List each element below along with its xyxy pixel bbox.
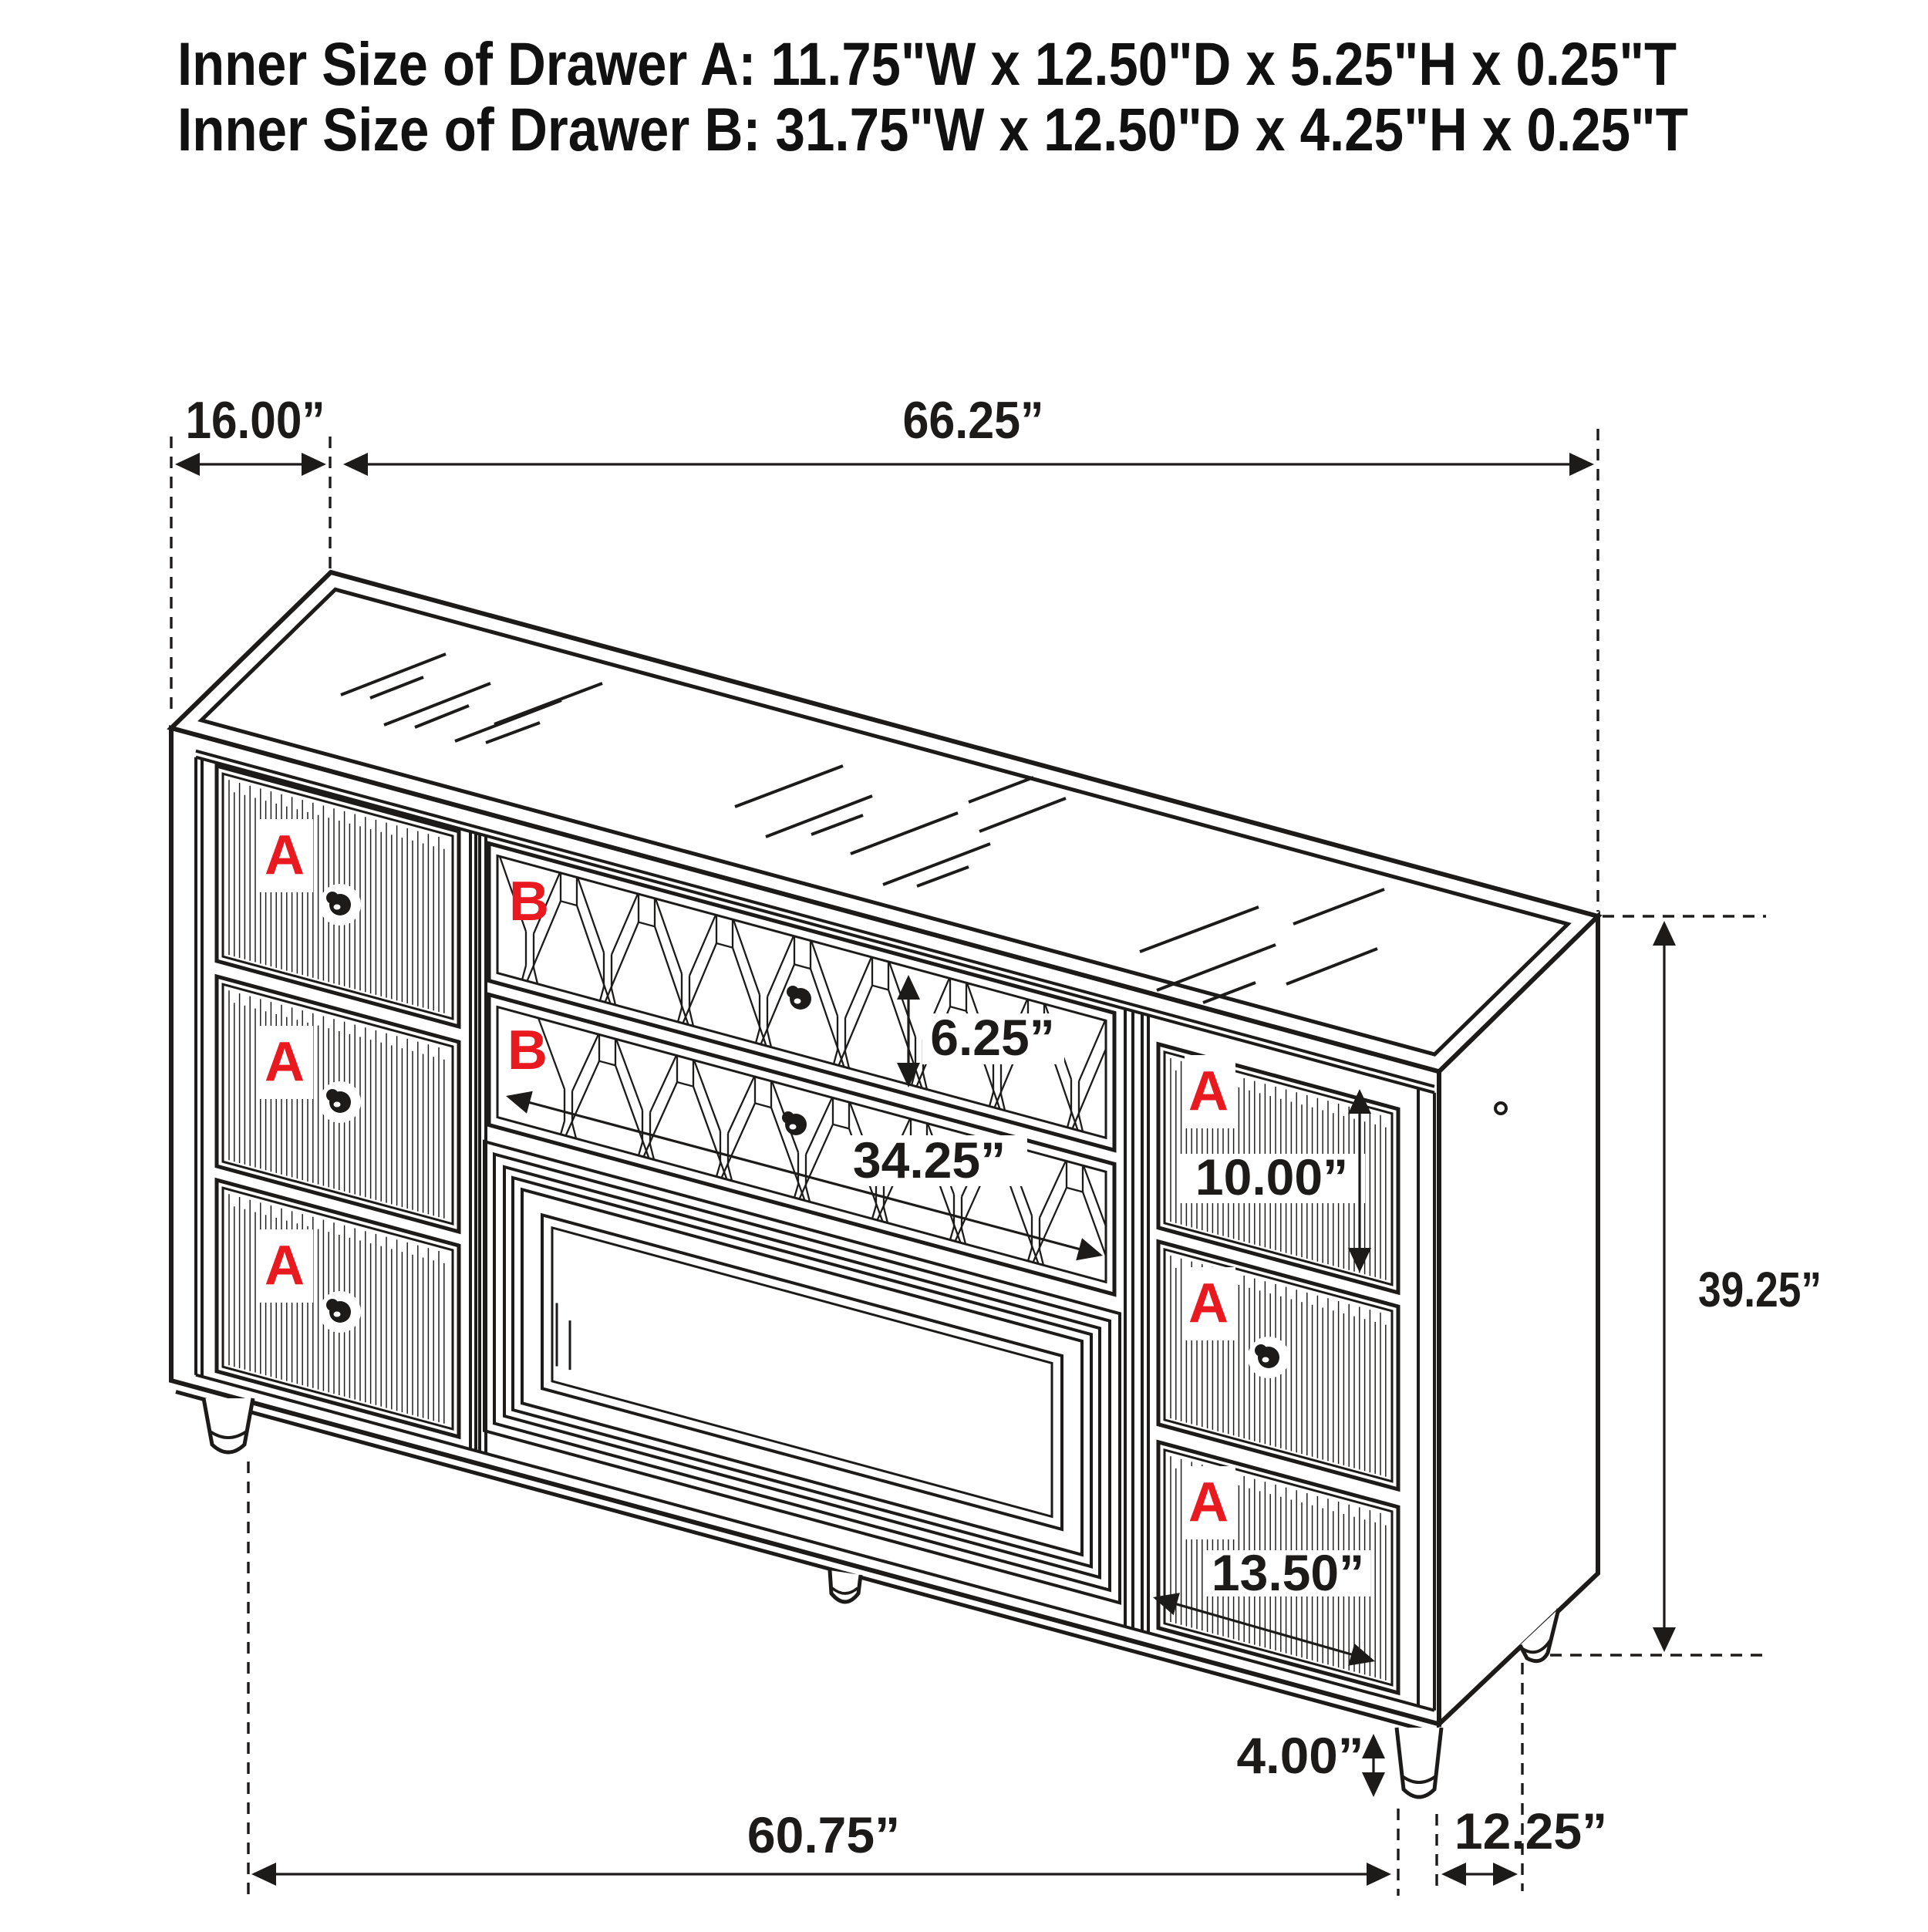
- svg-text:Inner Size of Drawer B: 31.75": Inner Size of Drawer B: 31.75"W x 12.50"…: [177, 95, 1688, 164]
- svg-text:4.00”: 4.00”: [1237, 1727, 1364, 1784]
- svg-text:34.25”: 34.25”: [853, 1131, 1006, 1189]
- svg-text:12.25”: 12.25”: [1454, 1802, 1607, 1860]
- svg-text:A: A: [265, 1031, 305, 1093]
- svg-text:A: A: [1188, 1273, 1229, 1334]
- svg-text:Inner Size of Drawer A: 11.75": Inner Size of Drawer A: 11.75"W x 12.50"…: [177, 29, 1677, 98]
- svg-text:A: A: [265, 824, 305, 886]
- svg-text:A: A: [1188, 1472, 1229, 1533]
- svg-text:B: B: [507, 1020, 548, 1081]
- svg-text:B: B: [509, 871, 549, 932]
- svg-text:66.25”: 66.25”: [903, 391, 1044, 450]
- svg-text:6.25”: 6.25”: [930, 1009, 1054, 1066]
- svg-text:A: A: [265, 1235, 305, 1296]
- svg-text:10.00”: 10.00”: [1195, 1148, 1348, 1205]
- svg-text:16.00”: 16.00”: [186, 391, 325, 450]
- svg-text:60.75”: 60.75”: [747, 1806, 900, 1863]
- svg-text:13.50”: 13.50”: [1212, 1544, 1364, 1601]
- svg-text:39.25”: 39.25”: [1698, 1262, 1822, 1317]
- svg-text:A: A: [1188, 1060, 1229, 1122]
